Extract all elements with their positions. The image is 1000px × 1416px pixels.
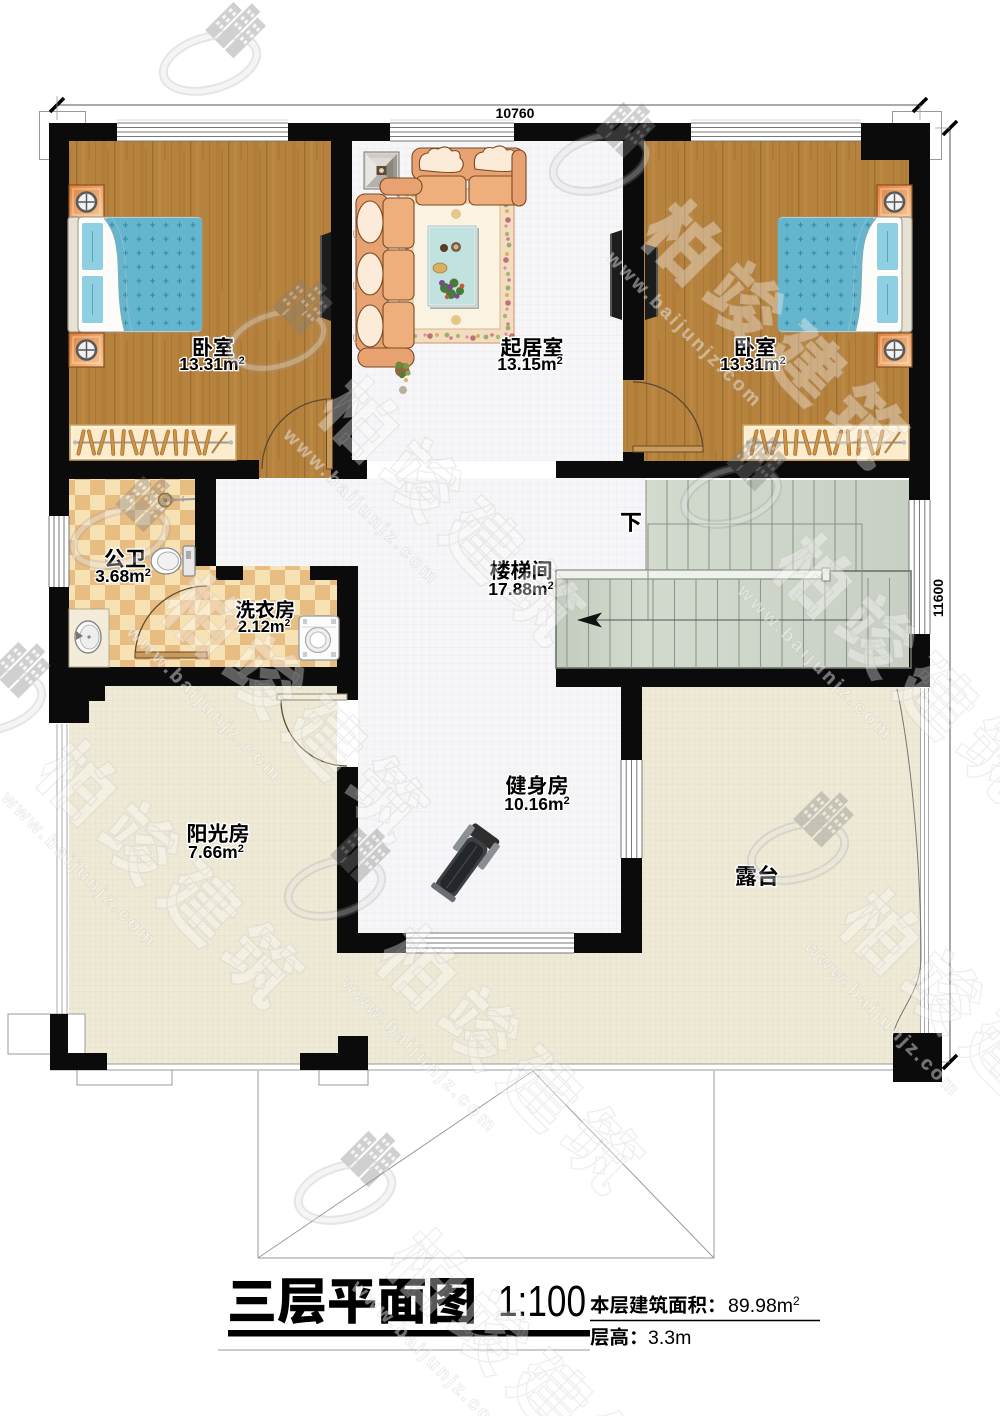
svg-text:10760: 10760 [496, 105, 535, 121]
svg-text:13.15m2: 13.15m2 [497, 354, 562, 374]
svg-text:7.66m2: 7.66m2 [188, 842, 244, 862]
svg-text:3.3m: 3.3m [648, 1327, 691, 1349]
svg-text:89.98m2: 89.98m2 [728, 1294, 800, 1317]
svg-text:11600: 11600 [930, 579, 946, 617]
svg-text:2.12m2: 2.12m2 [238, 618, 291, 636]
svg-text:10.16m2: 10.16m2 [504, 794, 569, 814]
svg-text:None: None [192, 0, 235, 4]
